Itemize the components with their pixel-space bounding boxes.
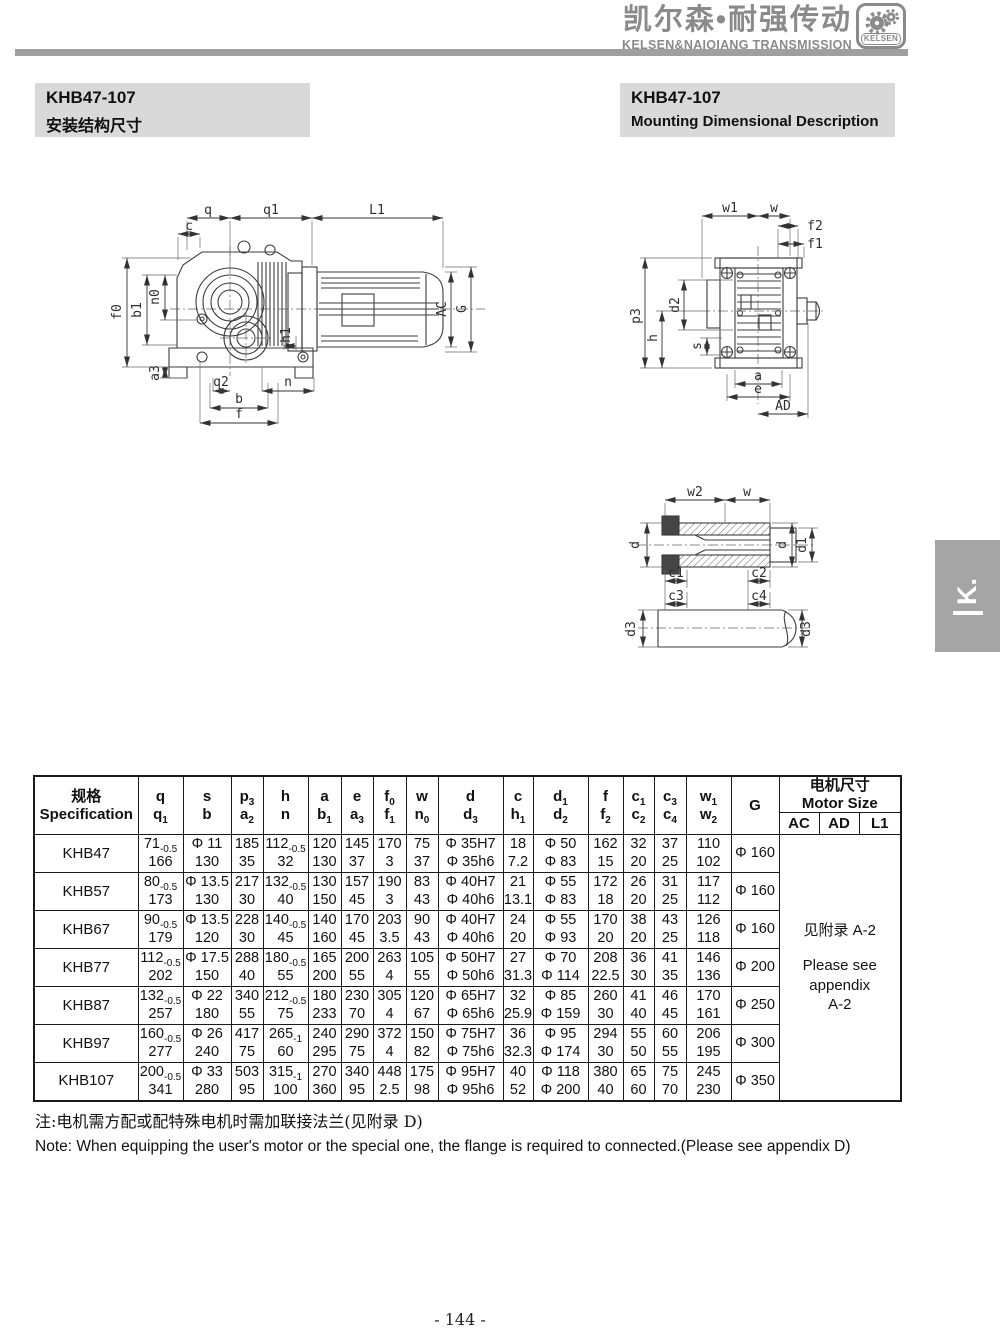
value-cell: Φ 40H7Φ 40h6 (438, 873, 503, 911)
column-header: ab1 (308, 776, 341, 835)
value-cell: 146136 (686, 949, 731, 987)
dim-label-d-left: d (628, 541, 643, 549)
dim-label-c1: c1 (668, 566, 684, 581)
value-cell: 80-0.5173 (138, 873, 183, 911)
spec-header-en: Specification (35, 806, 138, 824)
value-cell: 206195 (686, 1025, 731, 1063)
value-cell: 12067 (406, 987, 438, 1025)
model-cell: KHB107 (34, 1063, 138, 1101)
value-cell: 4482.5 (373, 1063, 406, 1101)
value-cell: 2420 (503, 911, 533, 949)
dimension-table: 规格 Specification qq1sbp3a2hnab1ea3f0f1wn… (33, 775, 902, 1102)
dim-label-q: q (204, 203, 212, 218)
value-cell: Φ 300 (731, 1025, 779, 1063)
model-cell: KHB77 (34, 949, 138, 987)
column-header: qq1 (138, 776, 183, 835)
dim-label-q2: q2 (213, 375, 229, 390)
column-header: d1d2 (533, 776, 588, 835)
value-cell: 71-0.5166 (138, 835, 183, 873)
table-body: KHB4771-0.5166Φ 1113018535112-0.53212013… (34, 835, 901, 1101)
table-row: KHB5780-0.5173Φ 13.513021730132-0.540130… (34, 873, 901, 911)
table-header-row: 规格 Specification qq1sbp3a2hnab1ea3f0f1wn… (34, 776, 901, 813)
dim-label-c2: c2 (751, 566, 767, 581)
value-cell: Φ 350 (731, 1063, 779, 1101)
value-cell: Φ 11130 (183, 835, 231, 873)
dim-label-f2: f2 (807, 219, 823, 234)
value-cell: 270360 (308, 1063, 341, 1101)
dim-label-G: G (455, 305, 470, 313)
value-cell: 50395 (231, 1063, 263, 1101)
value-cell: Φ 50H7Φ 50h6 (438, 949, 503, 987)
value-cell: 14537 (341, 835, 373, 873)
column-header: sb (183, 776, 231, 835)
company-logo: KELSEN (856, 3, 906, 49)
value-cell: Φ 118Φ 200 (533, 1063, 588, 1101)
model-cell: KHB67 (34, 911, 138, 949)
motor-appendix-cell: 见附录 A-2Please seeappendixA-2 (779, 835, 901, 1101)
value-cell: Φ 55Φ 93 (533, 911, 588, 949)
spec-header: 规格 Specification (34, 776, 138, 835)
value-cell: 2620 (623, 873, 654, 911)
value-cell: 2113.1 (503, 873, 533, 911)
dim-label-c4: c4 (751, 589, 767, 604)
catalog-page: 凯尔森•耐强传动 KELSEN&NAIQIANG TRANSMISSION KE… (0, 0, 1000, 1341)
dim-label-d1: d1 (795, 537, 810, 553)
value-cell: Φ 50Φ 83 (533, 835, 588, 873)
value-cell: 17218 (588, 873, 623, 911)
dim-label-n: n (284, 375, 292, 390)
value-cell: 6055 (654, 1025, 686, 1063)
dim-label-d3-right: d3 (799, 621, 814, 637)
value-cell: 120130 (308, 835, 341, 873)
value-cell: 245230 (686, 1063, 731, 1101)
appendix-note-en-line: appendix (780, 976, 901, 996)
value-cell: 34095 (341, 1063, 373, 1101)
brand-name-cn: 凯尔森•耐强传动 (622, 5, 852, 37)
value-cell: 26030 (588, 987, 623, 1025)
dim-label-q1: q1 (263, 203, 279, 218)
value-cell: 160-0.5277 (138, 1025, 183, 1063)
page-number: - 144 - (360, 1310, 560, 1329)
value-cell: 130150 (308, 873, 341, 911)
dim-label-a3: a3 (148, 365, 163, 381)
value-cell: 265-160 (263, 1025, 308, 1063)
header-divider (15, 49, 908, 56)
value-cell: 110102 (686, 835, 731, 873)
value-cell: 17598 (406, 1063, 438, 1101)
value-cell: 187.2 (503, 835, 533, 873)
column-header: w1w2 (686, 776, 731, 835)
value-cell: 18535 (231, 835, 263, 873)
value-cell: 16215 (588, 835, 623, 873)
value-cell: Φ 95H7Φ 95h6 (438, 1063, 503, 1101)
column-header: f0f1 (373, 776, 406, 835)
note-cn: 注:电机需方配或配特殊电机时需加联接法兰(见附录 D) (35, 1108, 423, 1132)
motor-size-en: Motor Size (780, 795, 901, 813)
value-cell: 17020 (588, 911, 623, 949)
table-row: KHB107200-0.5341Φ 3328050395315-11002703… (34, 1063, 901, 1101)
value-cell: 200-0.5341 (138, 1063, 183, 1101)
dim-label-AD: AD (775, 399, 791, 414)
column-header: hn (263, 776, 308, 835)
side-view-drawing: q q1 L1 c f0 b1 n0 a3 q2 n b f h1 AC G (30, 188, 510, 440)
title-subtitle-cn: 安装结构尺寸 (46, 112, 299, 136)
value-cell: 15745 (341, 873, 373, 911)
dim-label-p3: p3 (629, 308, 644, 324)
title-block-cn: KHB47-107 安装结构尺寸 (35, 83, 310, 137)
dim-label-f: f (235, 407, 243, 422)
shaft-view-drawing: w2 w d d d1 c1 c2 c3 c4 d3 d3 (598, 478, 898, 658)
dim-label-L1: L1 (369, 203, 385, 218)
value-cell: Φ 160 (731, 873, 779, 911)
value-cell: 112-0.532 (263, 835, 308, 873)
value-cell: 315-1100 (263, 1063, 308, 1101)
value-cell: 3125 (654, 873, 686, 911)
value-cell: 140160 (308, 911, 341, 949)
value-cell: Φ 75H7Φ 75h6 (438, 1025, 503, 1063)
model-range: KHB47-107 (46, 88, 299, 108)
value-cell: 8343 (406, 873, 438, 911)
dim-label-f1: f1 (807, 237, 823, 252)
motor-size-cn: 电机尺寸 (780, 777, 901, 795)
value-cell: 29075 (341, 1025, 373, 1063)
gear-icon (864, 9, 900, 35)
value-cell: 3630 (623, 949, 654, 987)
value-cell: 10555 (406, 949, 438, 987)
value-cell: 20822.5 (588, 949, 623, 987)
dim-label-w1: w1 (722, 201, 738, 216)
appendix-note-en-line: A-2 (780, 995, 901, 1015)
dim-label-c: c (185, 219, 193, 234)
motor-size-header: 电机尺寸 Motor Size (779, 776, 901, 813)
model-cell: KHB97 (34, 1025, 138, 1063)
value-cell: 2634 (373, 949, 406, 987)
column-header: dd3 (438, 776, 503, 835)
value-cell: Φ 250 (731, 987, 779, 1025)
value-cell: 34055 (231, 987, 263, 1025)
value-cell: Φ 13.5130 (183, 873, 231, 911)
motor-sub-header: AC (779, 813, 819, 835)
dim-label-s: s (690, 342, 705, 350)
value-cell: 15082 (406, 1025, 438, 1063)
model-cell: KHB87 (34, 987, 138, 1025)
value-cell: Φ 200 (731, 949, 779, 987)
value-cell: 4052 (503, 1063, 533, 1101)
table-row: KHB87132-0.5257Φ 2218034055212-0.5751802… (34, 987, 901, 1025)
dim-label-AC: AC (435, 301, 450, 317)
column-header: ea3 (341, 776, 373, 835)
value-cell: Φ 55Φ 83 (533, 873, 588, 911)
column-header: c3c4 (654, 776, 686, 835)
value-cell: 117112 (686, 873, 731, 911)
end-view-drawing: w1 w f2 f1 p3 h d2 s a e AD (612, 188, 912, 443)
value-cell: 22830 (231, 911, 263, 949)
title-subtitle-en: Mounting Dimensional Description (631, 113, 884, 130)
value-cell: 9043 (406, 911, 438, 949)
value-cell: 3724 (373, 1025, 406, 1063)
value-cell: 7570 (654, 1063, 686, 1101)
chapter-tab-underline (953, 611, 983, 615)
title-block-en: KHB47-107 Mounting Dimensional Descripti… (620, 83, 895, 137)
table-row: KHB77112-0.5202Φ 17.515028840180-0.55516… (34, 949, 901, 987)
value-cell: 7537 (406, 835, 438, 873)
value-cell: Φ 35H7Φ 35h6 (438, 835, 503, 873)
logo-label: KELSEN (861, 33, 901, 45)
value-cell: 21730 (231, 873, 263, 911)
dim-label-e: e (754, 382, 762, 397)
value-cell: 132-0.5257 (138, 987, 183, 1025)
value-cell: 1703 (373, 835, 406, 873)
value-cell: 112-0.5202 (138, 949, 183, 987)
value-cell: 170161 (686, 987, 731, 1025)
value-cell: Φ 22180 (183, 987, 231, 1025)
value-cell: Φ 40H7Φ 40h6 (438, 911, 503, 949)
column-header: G (731, 776, 779, 835)
value-cell: Φ 17.5150 (183, 949, 231, 987)
dim-label-w: w (770, 201, 778, 216)
value-cell: 3054 (373, 987, 406, 1025)
dim-label-d3-left: d3 (624, 621, 639, 637)
value-cell: 180-0.555 (263, 949, 308, 987)
dim-label-d2: d2 (668, 297, 683, 313)
value-cell: Φ 95Φ 174 (533, 1025, 588, 1063)
value-cell: 3632.3 (503, 1025, 533, 1063)
motor-sub-header: AD (819, 813, 859, 835)
column-header: c1c2 (623, 776, 654, 835)
dim-label-b1: b1 (130, 302, 145, 318)
table-head: 规格 Specification qq1sbp3a2hnab1ea3f0f1wn… (34, 776, 901, 835)
value-cell: Φ 85Φ 159 (533, 987, 588, 1025)
value-cell: 5550 (623, 1025, 654, 1063)
column-header: ch1 (503, 776, 533, 835)
value-cell: 20055 (341, 949, 373, 987)
dim-label-n0: n0 (148, 289, 163, 305)
model-cell: KHB47 (34, 835, 138, 873)
value-cell: 29430 (588, 1025, 623, 1063)
value-cell: 132-0.540 (263, 873, 308, 911)
column-header: ff2 (588, 776, 623, 835)
value-cell: 28840 (231, 949, 263, 987)
value-cell: Φ 13.5120 (183, 911, 231, 949)
value-cell: 126118 (686, 911, 731, 949)
value-cell: 1903 (373, 873, 406, 911)
dim-label-h1: h1 (279, 327, 294, 343)
value-cell: 165200 (308, 949, 341, 987)
dim-label-w2: w2 (687, 485, 703, 500)
motor-sub-header: L1 (859, 813, 901, 835)
table-row: KHB6790-0.5179Φ 13.512022830140-0.545140… (34, 911, 901, 949)
value-cell: Φ 33280 (183, 1063, 231, 1101)
appendix-note-cn: 见附录 A-2 (780, 921, 901, 941)
value-cell: 17045 (341, 911, 373, 949)
chapter-tab-label: K. (954, 578, 981, 605)
value-cell: 38040 (588, 1063, 623, 1101)
dim-label-w: w (743, 485, 751, 500)
dim-label-b: b (235, 392, 243, 407)
model-cell: KHB57 (34, 873, 138, 911)
value-cell: Φ 70Φ 114 (533, 949, 588, 987)
column-header: p3a2 (231, 776, 263, 835)
value-cell: 4645 (654, 987, 686, 1025)
model-range: KHB47-107 (631, 88, 884, 108)
dim-label-f0: f0 (110, 304, 125, 320)
dim-label-h: h (646, 334, 661, 342)
value-cell: 6560 (623, 1063, 654, 1101)
value-cell: 2033.5 (373, 911, 406, 949)
spec-header-cn: 规格 (35, 788, 138, 806)
appendix-note-en-line: Please see (780, 956, 901, 976)
column-header: wn0 (406, 776, 438, 835)
value-cell: 90-0.5179 (138, 911, 183, 949)
value-cell: 23070 (341, 987, 373, 1025)
value-cell: Φ 65H7Φ 65h6 (438, 987, 503, 1025)
dim-label-c3: c3 (668, 589, 684, 604)
brand-block: 凯尔森•耐强传动 KELSEN&NAIQIANG TRANSMISSION (622, 5, 852, 52)
table-row: KHB97160-0.5277Φ 2624041775265-160240295… (34, 1025, 901, 1063)
value-cell: Φ 26240 (183, 1025, 231, 1063)
table-row: KHB4771-0.5166Φ 1113018535112-0.53212013… (34, 835, 901, 873)
value-cell: 3820 (623, 911, 654, 949)
value-cell: 2731.3 (503, 949, 533, 987)
value-cell: 3225.9 (503, 987, 533, 1025)
value-cell: 140-0.545 (263, 911, 308, 949)
value-cell: 4140 (623, 987, 654, 1025)
value-cell: 4325 (654, 911, 686, 949)
value-cell: 240295 (308, 1025, 341, 1063)
value-cell: 41775 (231, 1025, 263, 1063)
value-cell: Φ 160 (731, 835, 779, 873)
value-cell: 4135 (654, 949, 686, 987)
dim-label-d-right: d (775, 541, 790, 549)
chapter-tab: K. (935, 540, 1000, 652)
value-cell: 3725 (654, 835, 686, 873)
note-en: Note: When equipping the user's motor or… (35, 1138, 850, 1156)
value-cell: 212-0.575 (263, 987, 308, 1025)
value-cell: 3220 (623, 835, 654, 873)
value-cell: Φ 160 (731, 911, 779, 949)
value-cell: 180233 (308, 987, 341, 1025)
